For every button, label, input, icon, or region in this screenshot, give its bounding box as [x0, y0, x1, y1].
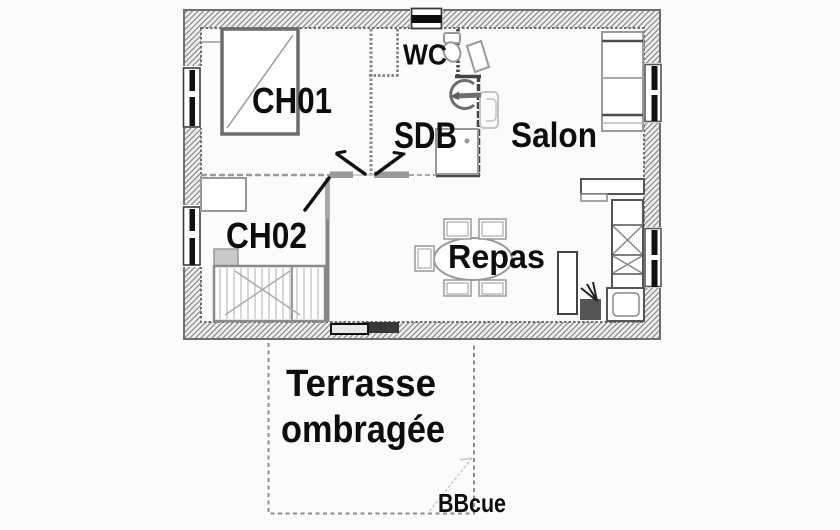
svg-text:CH01: CH01 [252, 80, 332, 121]
svg-text:Repas: Repas [448, 238, 545, 275]
svg-text:Terrasse: Terrasse [286, 363, 436, 405]
svg-text:ombragée: ombragée [281, 409, 445, 451]
svg-text:WC: WC [403, 40, 447, 72]
svg-text:SDB: SDB [394, 115, 457, 156]
svg-text:BBcue: BBcue [438, 488, 506, 518]
svg-text:Salon: Salon [511, 116, 597, 155]
svg-text:CH02: CH02 [226, 215, 307, 256]
